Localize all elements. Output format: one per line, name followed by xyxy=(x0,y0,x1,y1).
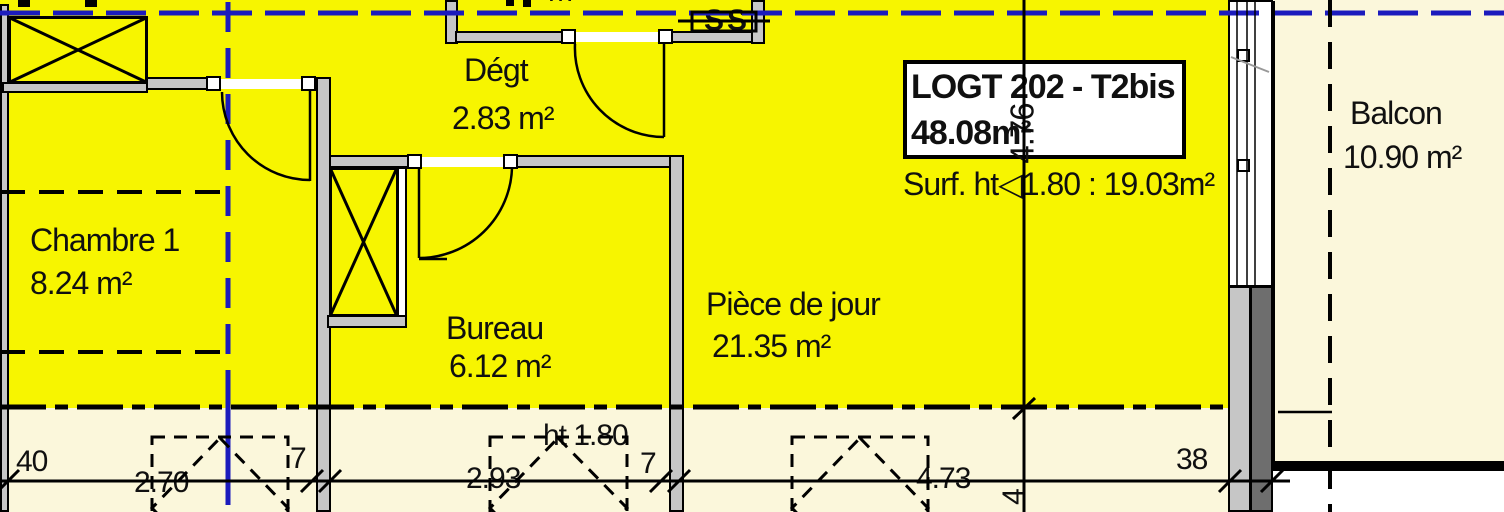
door-opening-bureau xyxy=(422,157,505,167)
wall-bureau-right xyxy=(669,155,684,512)
room-label-chambre: Chambre 1 xyxy=(30,224,179,258)
dim-2-70: 2.70 xyxy=(134,468,188,498)
window-handle xyxy=(1237,159,1250,172)
wall-under-shaft xyxy=(2,82,148,93)
door-opening-degt xyxy=(576,32,658,42)
wall-stub xyxy=(18,0,30,7)
room-area-bureau: 6.12 m² xyxy=(449,350,550,384)
wall-facade-inner xyxy=(1228,286,1251,512)
dim-4-vertical: 4 xyxy=(999,479,1029,512)
surface-note: Surf. ht◁1.80 : 19.03m² xyxy=(903,168,1214,202)
ss-label: SS xyxy=(704,6,750,36)
clipped-top-mark xyxy=(506,0,514,6)
room-label-balcon: Balcon xyxy=(1350,97,1442,131)
height-line-label: ht 1.80 xyxy=(543,420,628,452)
clipped-top-mark xyxy=(523,0,531,7)
wall-facade-outer xyxy=(1250,286,1273,512)
dim-4-73: 4.73 xyxy=(916,464,970,494)
room-label-degt: Dégt xyxy=(464,54,528,88)
wall-corridor xyxy=(146,77,208,90)
dim-7-b: 7 xyxy=(640,449,656,479)
closet-front xyxy=(397,167,407,317)
dim-2-93: 2.93 xyxy=(466,464,520,494)
dim-38: 38 xyxy=(1176,445,1207,475)
room-area-chambre: 8.24 m² xyxy=(30,267,131,301)
wall-bureau-top-b xyxy=(516,155,684,168)
floor-plan: LOGT 202 - T2bis 48.08m² Surf. ht◁1.80 :… xyxy=(0,0,1504,512)
room-area-piece-de-jour: 21.35 m² xyxy=(712,330,830,364)
dim-4-76-vertical: 4.76 xyxy=(1006,72,1039,196)
window-handle xyxy=(1237,49,1250,62)
door-post xyxy=(301,76,316,91)
wall-upper-room-right xyxy=(751,0,765,44)
room-area-balcon: 10.90 m² xyxy=(1343,141,1461,175)
dim-7-a: 7 xyxy=(290,444,306,474)
wall-stub xyxy=(85,0,97,7)
room-label-piece-de-jour: Pièce de jour xyxy=(706,288,880,322)
door-post xyxy=(206,76,221,91)
door-post xyxy=(658,29,673,44)
apartment-id: LOGT 202 - T2bis xyxy=(911,70,1175,104)
balcony-floor xyxy=(1273,0,1504,462)
clipped-top-label: m xyxy=(548,0,572,8)
door-post xyxy=(561,29,576,44)
wall-upper-room-bottom-a xyxy=(455,31,565,43)
door-post xyxy=(407,154,422,169)
shaft-symbol xyxy=(8,16,148,84)
closet-symbol xyxy=(329,167,399,317)
door-opening-chambre xyxy=(221,79,302,89)
room-area-degt: 2.83 m² xyxy=(452,102,553,136)
room-label-bureau: Bureau xyxy=(446,312,543,346)
door-post xyxy=(503,154,518,169)
wall-closet-bottom xyxy=(327,315,407,328)
dim-40: 40 xyxy=(16,447,47,477)
window-bay xyxy=(1228,0,1273,287)
